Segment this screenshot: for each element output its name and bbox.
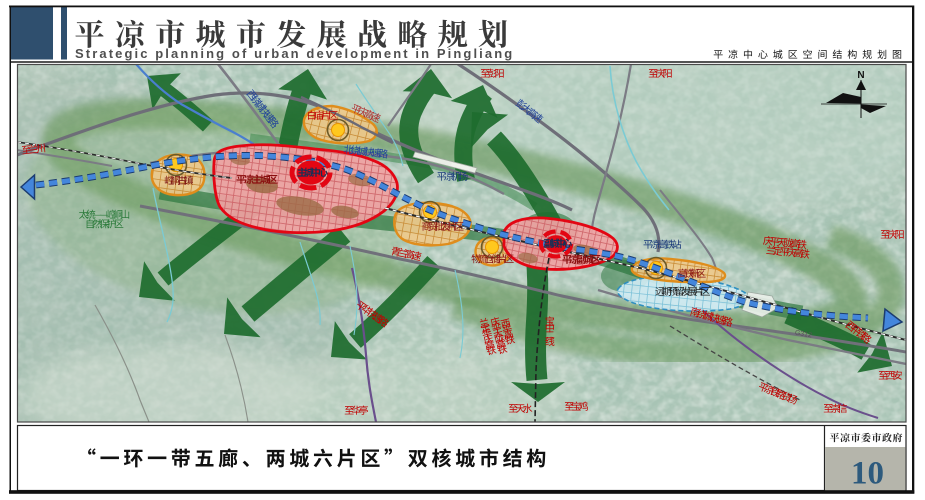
svg-text:N: N (857, 70, 864, 81)
svg-text:10: 10 (851, 456, 884, 492)
svg-text:Strategic planning of urban de: Strategic planning of urban development … (75, 46, 514, 61)
